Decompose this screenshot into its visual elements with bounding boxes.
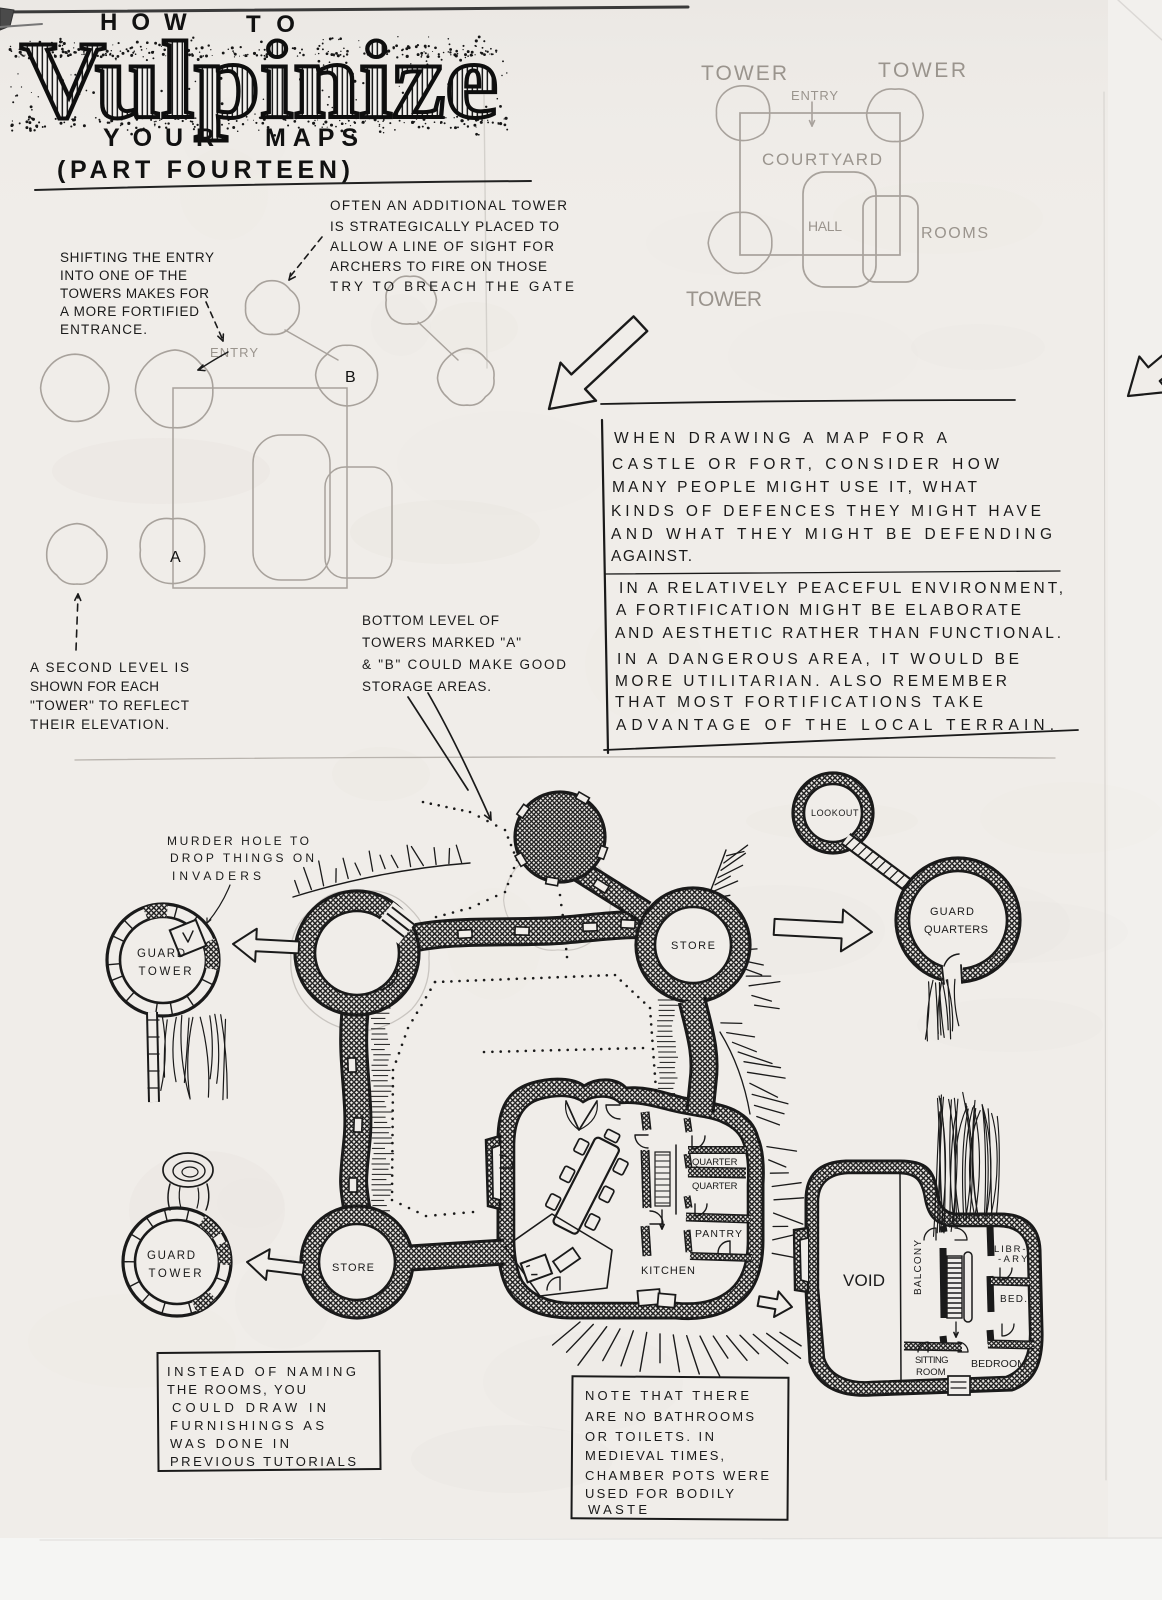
svg-text:YOUR: YOUR [103,124,228,152]
svg-text:A: A [170,549,183,566]
svg-text:OFTEN AN ADDITIONAL TOWER: OFTEN AN ADDITIONAL TOWER [330,198,568,213]
svg-text:ALLOW A LINE OF SIGHT FOR: ALLOW A LINE OF SIGHT FOR [330,239,555,254]
svg-text:(PART FOURTEEN): (PART FOURTEEN) [57,156,355,184]
svg-text:COULD DRAW IN: COULD DRAW IN [172,1400,327,1415]
svg-text:STORE: STORE [332,1262,376,1274]
svg-text:"TOWER" TO REFLECT: "TOWER" TO REFLECT [30,698,190,713]
svg-text:TOWER: TOWER [686,288,766,311]
svg-text:WAS DONE IN: WAS DONE IN [170,1436,290,1451]
svg-text:IN A RELATIVELY PEACEFUL ENVIR: IN A RELATIVELY PEACEFUL ENVIRONMENT, [619,580,1064,597]
svg-text:BED.: BED. [1000,1294,1028,1305]
svg-text:KITCHEN: KITCHEN [641,1265,697,1277]
svg-text:LOOKOUT: LOOKOUT [811,808,859,818]
svg-text:BALCONY: BALCONY [913,1239,924,1295]
svg-text:BEDROOM: BEDROOM [971,1358,1027,1370]
svg-text:TOWER: TOWER [878,59,970,82]
svg-text:GUARD: GUARD [137,948,187,960]
svg-text:ARE NO BATHROOMS: ARE NO BATHROOMS [585,1409,755,1424]
svg-text:ROOM: ROOM [916,1367,946,1378]
svg-text:STORAGE AREAS.: STORAGE AREAS. [362,679,492,694]
svg-text:-ARY: -ARY [998,1254,1028,1265]
svg-text:IS STRATEGICALLY PLACED TO: IS STRATEGICALLY PLACED TO [330,219,560,234]
svg-text:MAPS: MAPS [265,124,372,152]
svg-text:INTO ONE OF THE: INTO ONE OF THE [60,268,188,283]
svg-text:QUARTER: QUARTER [692,1157,738,1168]
svg-text:ENTRANCE.: ENTRANCE. [60,322,148,337]
svg-text:OR TOILETS. IN: OR TOILETS. IN [585,1429,715,1444]
svg-text:INVADERS: INVADERS [172,869,262,883]
svg-text:& "B" COULD MAKE GOOD: & "B" COULD MAKE GOOD [362,657,567,672]
svg-text:WASTE: WASTE [588,1502,648,1517]
svg-text:MANY PEOPLE MIGHT USE IT, WHAT: MANY PEOPLE MIGHT USE IT, WHAT [612,479,978,496]
svg-text:QUARTER: QUARTER [692,1181,738,1192]
svg-text:B: B [345,369,358,386]
svg-text:SHIFTING THE ENTRY: SHIFTING THE ENTRY [60,250,215,265]
svg-text:MEDIEVAL TIMES,: MEDIEVAL TIMES, [585,1448,725,1463]
svg-text:TRY TO BREACH THE GATE: TRY TO BREACH THE GATE [330,279,575,294]
svg-text:WHEN DRAWING A MAP FOR A: WHEN DRAWING A MAP FOR A [614,430,948,447]
svg-text:GUARD: GUARD [147,1250,197,1262]
svg-text:SHOWN FOR EACH: SHOWN FOR EACH [30,679,160,694]
svg-text:TOWER: TOWER [149,1268,204,1280]
svg-text:USED FOR BODILY: USED FOR BODILY [585,1486,735,1501]
svg-text:TOWERS MAKES FOR: TOWERS MAKES FOR [60,286,210,301]
svg-text:ROOMS: ROOMS [921,225,991,242]
svg-text:TOWER: TOWER [139,966,194,978]
svg-text:A MORE FORTIFIED: A MORE FORTIFIED [60,304,200,319]
svg-text:THE ROOMS, YOU: THE ROOMS, YOU [167,1382,307,1397]
svg-text:CHAMBER POTS WERE: CHAMBER POTS WERE [585,1468,770,1483]
svg-text:TOWER: TOWER [701,62,791,85]
svg-text:THEIR ELEVATION.: THEIR ELEVATION. [30,717,170,732]
svg-text:COURTYARD: COURTYARD [762,150,885,169]
svg-text:QUARTERS: QUARTERS [924,924,990,936]
svg-text:HALL: HALL [808,218,844,234]
svg-text:SITTING: SITTING [915,1355,949,1366]
svg-text:ENTRY: ENTRY [791,88,840,103]
svg-text:A SECOND LEVEL IS: A SECOND LEVEL IS [30,660,190,675]
svg-text:ARCHERS TO FIRE ON THOSE: ARCHERS TO FIRE ON THOSE [330,259,548,274]
svg-text:BOTTOM LEVEL OF: BOTTOM LEVEL OF [362,613,500,628]
svg-text:GUARD: GUARD [930,906,976,918]
svg-text:Vulpinize: Vulpinize [20,19,498,141]
svg-text:VOID: VOID [843,1271,889,1290]
svg-text:AND WHAT THEY MIGHT BE DEFENDI: AND WHAT THEY MIGHT BE DEFENDING [611,526,1053,543]
svg-text:STORE: STORE [671,940,717,952]
svg-text:A FORTIFICATION MIGHT BE ELABO: A FORTIFICATION MIGHT BE ELABORATE [616,602,1022,619]
svg-text:PREVIOUS TUTORIALS: PREVIOUS TUTORIALS [170,1454,357,1469]
svg-text:IN A DANGEROUS AREA, IT WOULD: IN A DANGEROUS AREA, IT WOULD BE [617,651,1020,668]
svg-text:INSTEAD OF NAMING: INSTEAD OF NAMING [167,1364,357,1379]
svg-text:PANTRY: PANTRY [695,1228,743,1240]
svg-text:AGAINST.: AGAINST. [611,548,693,565]
svg-text:TOWERS MARKED "A": TOWERS MARKED "A" [362,635,522,650]
